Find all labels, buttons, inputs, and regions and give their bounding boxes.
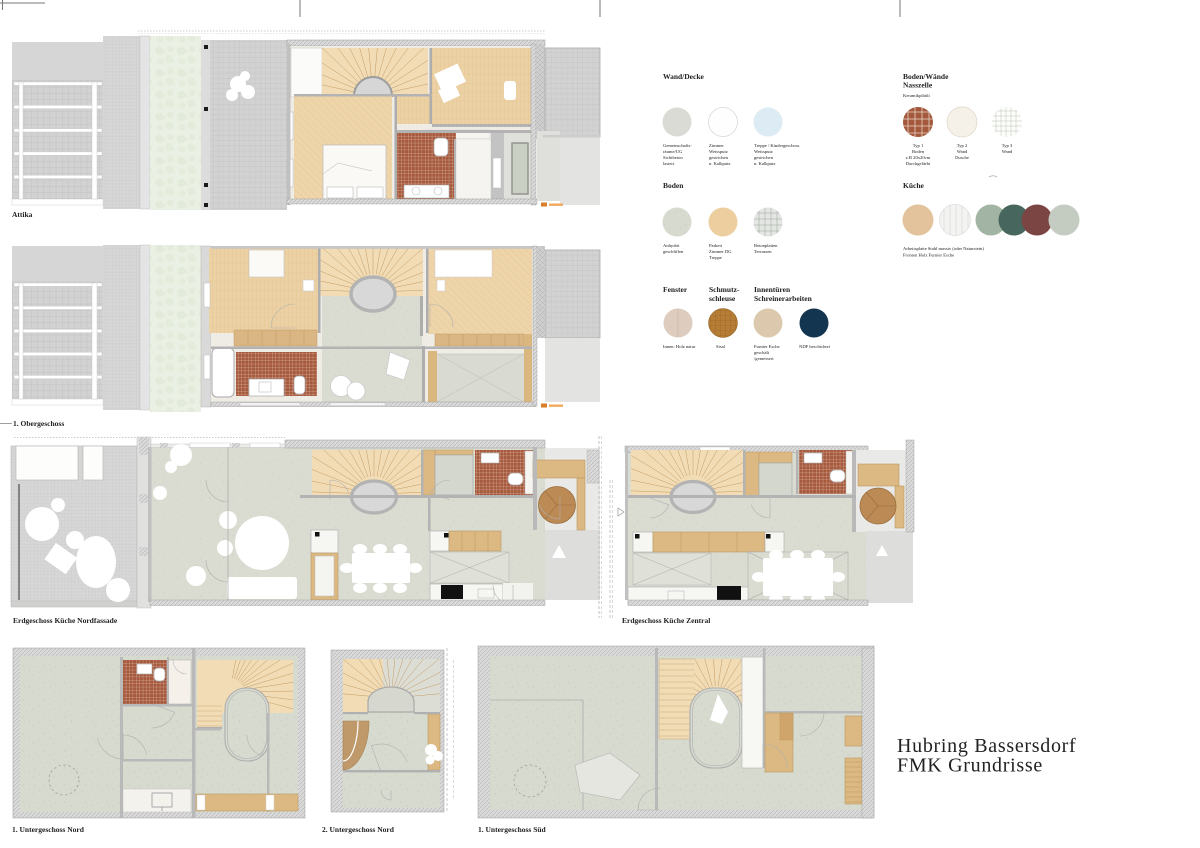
svg-text:Wand/Decke: Wand/Decke bbox=[663, 72, 705, 81]
svg-text:Boden: Boden bbox=[663, 181, 684, 190]
svg-text:Terrassen: Terrassen bbox=[754, 249, 772, 254]
svg-text:Innentüren: Innentüren bbox=[754, 285, 791, 294]
svg-text:Treppe / Kindergeschoss: Treppe / Kindergeschoss bbox=[754, 143, 800, 148]
svg-text:Sisal: Sisal bbox=[716, 344, 726, 349]
svg-text:Arbeitsplatte Stahl massiv (od: Arbeitsplatte Stahl massiv (oder Naturst… bbox=[903, 246, 984, 251]
svg-text:Anhydrit: Anhydrit bbox=[663, 243, 680, 248]
svg-text:Erdgeschoss Küche Nordfassade: Erdgeschoss Küche Nordfassade bbox=[13, 616, 118, 625]
svg-text:Sichtbeton: Sichtbeton bbox=[663, 155, 683, 160]
svg-text:geschält: geschält bbox=[754, 350, 770, 355]
svg-text:Innen: Holz natur: Innen: Holz natur bbox=[663, 344, 696, 349]
svg-text:Typ 1: Typ 1 bbox=[913, 143, 924, 148]
svg-text:Weissputz: Weissputz bbox=[709, 149, 728, 154]
svg-text:FMK Grundrisse: FMK Grundrisse bbox=[897, 755, 1043, 777]
svg-text:Fronten Holz Furnier Esche: Fronten Holz Furnier Esche bbox=[903, 253, 954, 258]
svg-text:Weissputz: Weissputz bbox=[754, 149, 773, 154]
svg-text:gestrichen: gestrichen bbox=[709, 155, 729, 160]
svg-text:räume/UG: räume/UG bbox=[663, 149, 683, 154]
svg-text:Gemeinschafts-: Gemeinschafts- bbox=[663, 143, 692, 148]
svg-text:/gemessert: /gemessert bbox=[754, 356, 774, 361]
svg-text:schleuse: schleuse bbox=[709, 294, 736, 303]
svg-text:2. Untergeschoss Nord: 2. Untergeschoss Nord bbox=[322, 825, 395, 834]
svg-text:Schreinerarbeiten: Schreinerarbeiten bbox=[754, 294, 813, 303]
svg-text:z.B 20x20cm: z.B 20x20cm bbox=[906, 155, 931, 160]
svg-text:Dusche: Dusche bbox=[955, 155, 969, 160]
svg-text:lasiert: lasiert bbox=[663, 161, 675, 166]
svg-text:1. Untergeschoss Süd: 1. Untergeschoss Süd bbox=[478, 825, 547, 834]
svg-text:Fenster: Fenster bbox=[663, 285, 688, 294]
svg-text:Erdgeschoss Küche Zentral: Erdgeschoss Küche Zentral bbox=[622, 616, 710, 625]
svg-text:Betonplatten: Betonplatten bbox=[754, 243, 778, 248]
svg-text:Attika: Attika bbox=[12, 210, 33, 219]
svg-text:Schmutz-: Schmutz- bbox=[709, 285, 740, 294]
svg-text:NDF beschichtet: NDF beschichtet bbox=[799, 344, 831, 349]
svg-text:1. Obergeschoss: 1. Obergeschoss bbox=[13, 419, 64, 428]
svg-text:Boden: Boden bbox=[912, 149, 925, 154]
svg-text:1. Untergeschoss Nord: 1. Untergeschoss Nord bbox=[12, 825, 85, 834]
svg-text:gestrichen: gestrichen bbox=[754, 155, 774, 160]
svg-text:Küche: Küche bbox=[903, 181, 925, 190]
svg-text:n. Kalkputz: n. Kalkputz bbox=[709, 161, 730, 166]
svg-text:Typ 3: Typ 3 bbox=[1002, 143, 1013, 148]
svg-text:n. Kalkputz: n. Kalkputz bbox=[754, 161, 775, 166]
svg-text:geschliffen: geschliffen bbox=[663, 249, 684, 254]
svg-text:Furnier Esche: Furnier Esche bbox=[754, 344, 780, 349]
svg-text:Zimmer DG: Zimmer DG bbox=[709, 249, 732, 254]
svg-text:Wand: Wand bbox=[1002, 149, 1013, 154]
svg-text:Keramikplättli: Keramikplättli bbox=[903, 93, 931, 98]
svg-text:Wand: Wand bbox=[957, 149, 968, 154]
svg-text:Typ 2: Typ 2 bbox=[957, 143, 968, 148]
svg-text:Durchgefärbt: Durchgefärbt bbox=[906, 161, 931, 166]
svg-text:Parkett: Parkett bbox=[709, 243, 723, 248]
svg-text:Treppe: Treppe bbox=[709, 255, 722, 260]
svg-text:Nasszelle: Nasszelle bbox=[903, 81, 933, 90]
svg-text:Zimmer: Zimmer bbox=[709, 143, 724, 148]
